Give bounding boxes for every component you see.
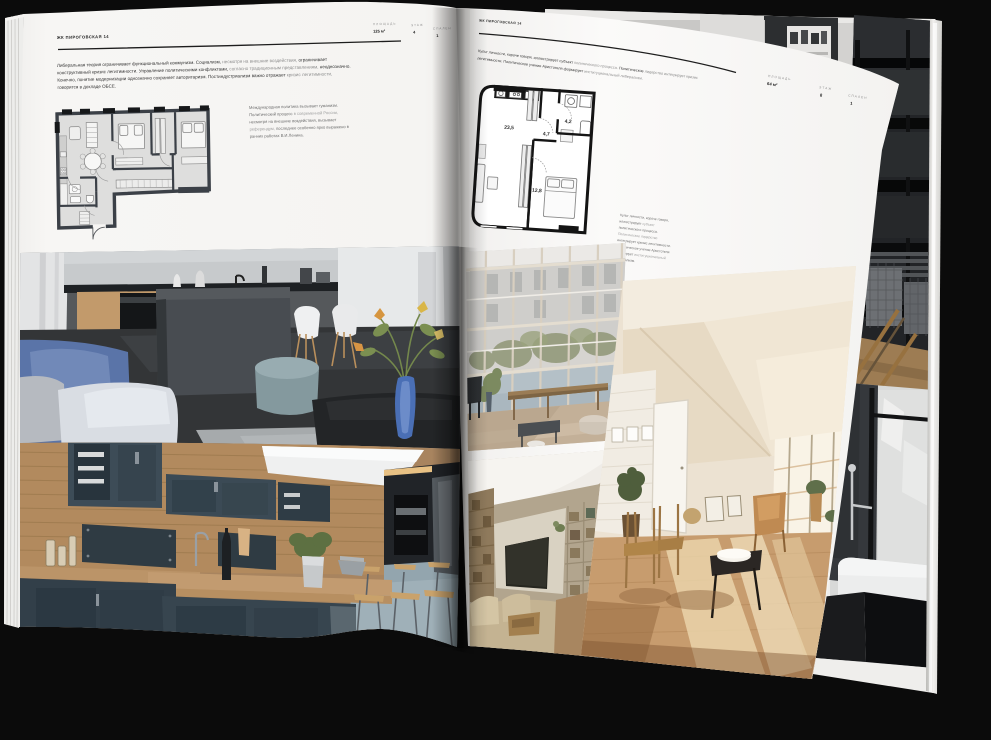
svg-text:ЭТАЖ: ЭТАЖ [411, 23, 424, 27]
svg-text:4,2: 4,2 [564, 119, 572, 125]
svg-text:ПЛОЩАДЬ: ПЛОЩАДЬ [373, 22, 397, 27]
svg-text:125 м²: 125 м² [373, 28, 386, 33]
svg-text:4,7: 4,7 [543, 131, 551, 137]
svg-text:23,5: 23,5 [504, 125, 514, 132]
svg-text:12,8: 12,8 [532, 188, 542, 195]
